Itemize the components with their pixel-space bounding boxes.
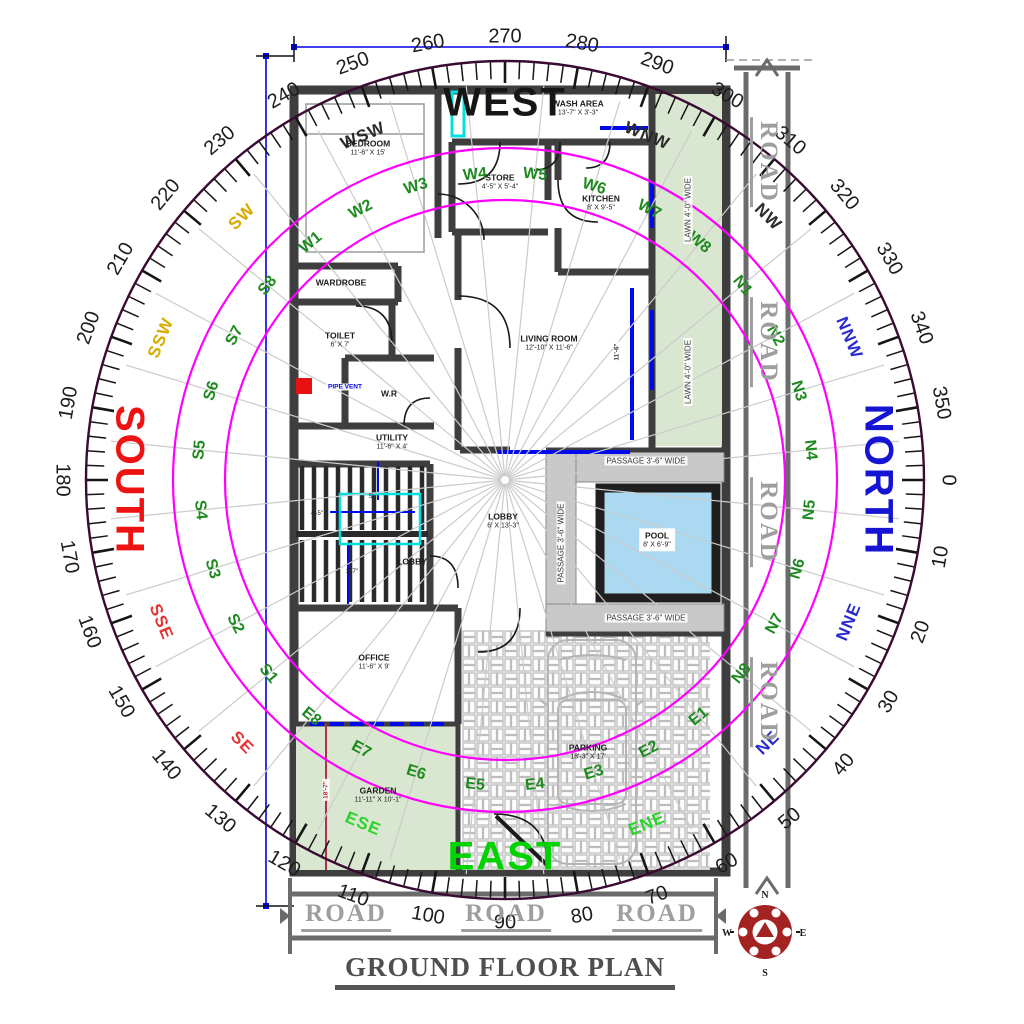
cardinal-label-south: SOUTH <box>107 405 152 555</box>
subdir-label-nne: NNE <box>832 601 865 645</box>
room-label-pool-dims: 8' X 6'-9" <box>643 541 671 550</box>
degree-label-0: 0 <box>937 474 960 485</box>
degree-label-300: 300 <box>706 78 746 115</box>
room-label-lobby-dims: 6' X 13'-3" <box>487 522 519 531</box>
room-label-toilet: TOILET6' X 7' <box>325 330 355 349</box>
degree-label-240: 240 <box>263 78 303 115</box>
room-label-lobby-name: LOBBY <box>487 511 519 522</box>
zone-label-N3: N3 <box>786 379 809 404</box>
zone-label-E2: E2 <box>636 737 662 762</box>
zone-label-N4: N4 <box>800 439 820 461</box>
zone-label-S5: S5 <box>191 439 211 460</box>
zone-label-W1: W1 <box>296 229 326 258</box>
zone-label-S4: S4 <box>191 499 211 520</box>
room-label-wash-area-dims: 13'-7" X 3'-3" <box>552 109 604 118</box>
room-label-wardrobe-name: WARDROBE <box>316 278 367 289</box>
room-label-wash-area-name: WASH AREA <box>552 98 604 109</box>
passage-label-top: PASSAGE 3'-6" WIDE <box>605 457 688 466</box>
room-label-wardrobe: WARDROBE <box>316 278 367 289</box>
zone-label-W7: W7 <box>634 197 664 224</box>
subdir-label-sse: SSE <box>145 601 178 643</box>
degree-label-180: 180 <box>51 463 74 496</box>
zone-label-E4: E4 <box>524 775 545 795</box>
degree-label-130: 130 <box>200 800 240 839</box>
degree-label-210: 210 <box>103 238 140 278</box>
zone-label-E8: E8 <box>298 703 325 729</box>
room-label-office: OFFICE11'-6" X 9' <box>358 652 389 671</box>
room-label-store: STORE4'-5" X 5'-4" <box>482 172 518 191</box>
room-label-kitchen-name: KITCHEN <box>582 193 620 204</box>
road-label-5: ROAD <box>301 900 391 932</box>
room-label-toilet-dims: 6' X 7' <box>325 341 355 350</box>
degree-label-120: 120 <box>263 845 303 882</box>
road-label-3: ROAD <box>750 477 782 567</box>
room-label-store-dims: 4'-5" X 5'-4" <box>482 183 518 192</box>
room-label-parking-name: PARKING <box>569 742 608 753</box>
room-label-wr: W.R <box>381 389 397 400</box>
room-label-store-name: STORE <box>482 172 518 183</box>
road-label-1: ROAD <box>750 117 782 207</box>
zone-label-E6: E6 <box>404 761 428 784</box>
degree-label-10: 10 <box>928 544 955 570</box>
zone-label-W3: W3 <box>402 175 430 199</box>
zone-label-S8: S8 <box>255 273 281 300</box>
labels-layer: 0102030405060708090100110120130140150160… <box>0 0 1024 1024</box>
room-label-kitchen-dims: 8' X 9'-5" <box>582 204 620 213</box>
room-label-pool-name: POOL <box>643 530 671 541</box>
room-label-bedroom-name: BEDROOM <box>346 138 390 149</box>
stair-dim-2: 5' <box>367 494 375 500</box>
cardinal-label-west: WEST <box>443 81 567 126</box>
zone-label-E7: E7 <box>348 737 374 762</box>
zone-label-N7: N7 <box>762 611 788 638</box>
floor-plan-canvas: NS WE 0102030405060708090100110120130140… <box>0 0 1024 1024</box>
room-label-pool: POOL8' X 6'-9" <box>640 529 674 550</box>
degree-label-100: 100 <box>410 902 447 930</box>
degree-label-350: 350 <box>927 385 955 422</box>
zone-label-E5: E5 <box>464 775 485 795</box>
room-label-living-room: LIVING ROOM12'-10" X 11'-6" <box>520 333 577 352</box>
passage-label-bottom: PASSAGE 3'-6" WIDE <box>605 614 688 623</box>
degree-label-40: 40 <box>828 749 860 781</box>
room-label-bedroom-dims: 11'-6" X 15' <box>346 149 390 158</box>
degree-label-160: 160 <box>72 612 105 651</box>
degree-label-80: 80 <box>569 903 595 930</box>
lawn-label-1: LAWN 4'-0" WIDE <box>684 176 693 244</box>
degree-label-50: 50 <box>774 803 806 835</box>
zone-label-S6: S6 <box>201 379 224 403</box>
degree-label-150: 150 <box>103 681 140 721</box>
room-label-wash-area: WASH AREA13'-7" X 3'-3" <box>552 98 604 117</box>
room-label-toilet-name: TOILET <box>325 330 355 341</box>
cardinal-label-north: NORTH <box>856 404 901 556</box>
room-label-utility-name: UTILITY <box>376 432 408 443</box>
subdir-label-se: SE <box>226 727 258 759</box>
road-label-2: ROAD <box>750 297 782 387</box>
subdir-label-ene: ENE <box>626 807 669 840</box>
degree-label-60: 60 <box>711 848 742 879</box>
road-label-4: ROAD <box>750 657 782 747</box>
zone-label-N1: N1 <box>728 272 755 299</box>
degree-label-220: 220 <box>146 175 185 215</box>
road-label-7: ROAD <box>612 900 702 932</box>
room-label-parking: PARKING18'-3" X 17' <box>569 742 608 761</box>
cardinal-label-east: EAST <box>448 835 563 880</box>
room-label-office-dims: 11'-6" X 9' <box>358 663 389 672</box>
degree-label-30: 30 <box>873 686 904 717</box>
room-label-lobby-2: LOBBY <box>397 557 427 568</box>
degree-label-190: 190 <box>54 385 82 422</box>
passage-label-vertical: PASSAGE 3'-6" WIDE <box>557 502 566 585</box>
degree-label-140: 140 <box>146 745 185 785</box>
room-label-living-room-dims: 12'-10" X 11'-6" <box>520 344 577 353</box>
room-label-parking-dims: 18'-3" X 17' <box>569 753 608 762</box>
room-label-utility-dims: 11'-6" X 4' <box>376 443 408 452</box>
room-label-lobby: LOBBY6' X 13'-3" <box>487 511 519 530</box>
room-label-garden-name: GARDEN <box>354 785 401 796</box>
degree-label-270: 270 <box>488 26 521 49</box>
stair-dim-3: 3'-7" <box>344 569 360 575</box>
degree-label-200: 200 <box>72 309 105 348</box>
subdir-label-ese: ESE <box>342 807 384 840</box>
room-label-utility: UTILITY11'-6" X 4' <box>376 432 408 451</box>
zone-label-S2: S2 <box>223 611 248 637</box>
room-label-wr-name: W.R <box>381 389 397 400</box>
page-title: GROUND FLOOR PLAN <box>335 952 675 990</box>
subdir-label-sw: SW <box>224 199 259 234</box>
degree-label-250: 250 <box>334 47 373 80</box>
road-label-6: ROAD <box>461 900 551 932</box>
room-label-kitchen: KITCHEN8' X 9'-5" <box>582 193 620 212</box>
subdir-label-ssw: SSW <box>144 315 178 361</box>
zone-label-S3: S3 <box>201 557 224 581</box>
room-label-bedroom: BEDROOM11'-6" X 15' <box>346 138 390 157</box>
zone-label-W2: W2 <box>346 197 376 224</box>
zone-label-W5: W5 <box>522 165 548 185</box>
degree-label-260: 260 <box>410 29 447 57</box>
degree-label-230: 230 <box>200 121 240 160</box>
degree-label-320: 320 <box>825 175 864 215</box>
zone-label-S1: S1 <box>255 661 281 688</box>
room-label-office-name: OFFICE <box>358 652 389 663</box>
degree-label-340: 340 <box>905 309 938 348</box>
degree-label-280: 280 <box>563 29 600 57</box>
garden-dim: 18'-7" <box>323 779 330 801</box>
zone-label-E3: E3 <box>582 761 606 784</box>
degree-label-290: 290 <box>637 47 676 80</box>
subdir-label-nnw: NNW <box>831 314 866 362</box>
lawn-label-2: LAWN 4'-0" WIDE <box>684 338 693 406</box>
zone-label-S7: S7 <box>223 323 248 349</box>
zone-label-N5: N5 <box>800 499 820 521</box>
room-label-living-room-name: LIVING ROOM <box>520 333 577 344</box>
degree-label-330: 330 <box>870 238 907 278</box>
subdir-label-wnw: WNW <box>622 118 673 155</box>
pipe-vent-label: PIPE VENT <box>326 384 364 391</box>
room-label-lobby-2-name: LOBBY <box>397 557 427 568</box>
zone-label-N6: N6 <box>786 556 809 581</box>
living-dim: 11'-6" <box>614 341 621 362</box>
stair-dim-1: 4'-5" <box>309 511 325 517</box>
room-label-garden-dims: 11'-11" X 10'-1" <box>354 796 401 805</box>
degree-label-170: 170 <box>54 538 82 575</box>
zone-label-E1: E1 <box>686 703 713 729</box>
room-label-garden: GARDEN11'-11" X 10'-1" <box>354 785 401 804</box>
degree-label-20: 20 <box>907 617 936 646</box>
